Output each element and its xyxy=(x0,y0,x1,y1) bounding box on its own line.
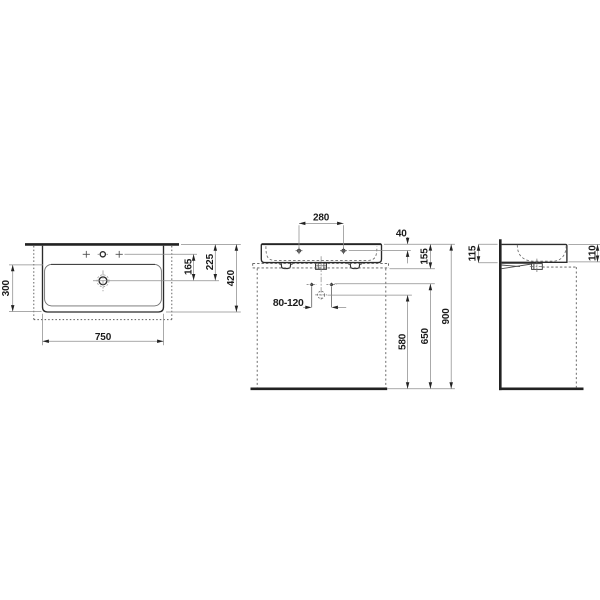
svg-text:115: 115 xyxy=(468,245,479,261)
svg-text:80-120: 80-120 xyxy=(273,298,304,309)
svg-text:280: 280 xyxy=(313,213,330,224)
svg-text:40: 40 xyxy=(396,228,407,239)
svg-text:420: 420 xyxy=(226,269,237,286)
svg-text:580: 580 xyxy=(397,333,408,350)
svg-text:155: 155 xyxy=(420,248,431,265)
svg-text:750: 750 xyxy=(95,332,112,343)
svg-text:225: 225 xyxy=(205,253,216,270)
svg-text:300: 300 xyxy=(1,280,12,297)
svg-text:165: 165 xyxy=(184,258,195,275)
svg-text:900: 900 xyxy=(441,308,452,325)
svg-text:650: 650 xyxy=(420,328,431,345)
svg-text:110: 110 xyxy=(587,245,598,261)
